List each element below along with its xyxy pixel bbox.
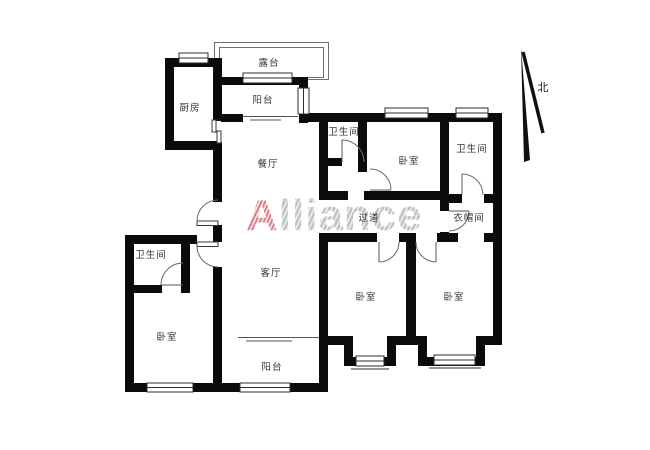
room-label-bathroom-left: 卫生间 bbox=[135, 247, 167, 261]
floorplan-svg bbox=[0, 0, 650, 450]
floorplan-canvas: Alliance bbox=[0, 0, 650, 450]
room-label-balcony-bottom: 阳台 bbox=[261, 359, 282, 373]
north-arrow bbox=[521, 47, 543, 162]
room-label-bedroom-mid: 卧室 bbox=[355, 289, 376, 303]
room-label-kitchen: 厨房 bbox=[179, 100, 200, 114]
room-label-bedroom-right: 卧室 bbox=[443, 289, 464, 303]
room-label-bedroom-left: 卧室 bbox=[156, 329, 177, 343]
room-label-balcony-top: 阳台 bbox=[252, 92, 273, 106]
room-label-terrace: 露台 bbox=[258, 55, 279, 69]
room-label-bathroom-mid: 卫生间 bbox=[328, 124, 360, 138]
room-label-living: 客厅 bbox=[260, 265, 281, 279]
room-label-dining: 餐厅 bbox=[257, 156, 278, 170]
room-label-cloakroom: 衣帽间 bbox=[453, 210, 485, 224]
room-label-hallway: 过道 bbox=[358, 210, 379, 224]
room-label-bathroom-topright: 卫生间 bbox=[456, 141, 488, 155]
sliding-doors-layer bbox=[212, 117, 319, 342]
north-label: 北 bbox=[538, 79, 549, 95]
room-label-bedroom-top: 卧室 bbox=[398, 153, 419, 167]
